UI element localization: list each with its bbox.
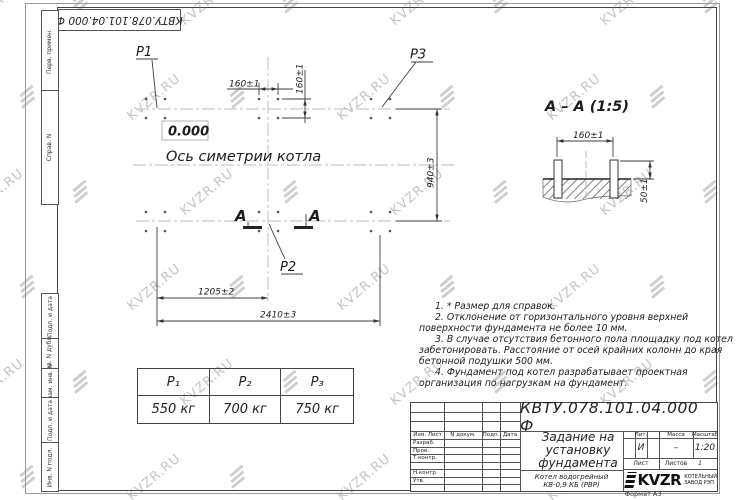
load-table-value-p1: 550 кг [138, 396, 210, 423]
anchor-dot [258, 211, 261, 214]
anchor-dot [145, 230, 148, 233]
section-view: А – А (1:5) 160±1 50±1 [510, 95, 685, 220]
row-prov: Пров. [413, 447, 444, 454]
scale-value: 1:20 [693, 440, 717, 456]
anchor-dot [389, 230, 392, 233]
section-letter-right: А [308, 207, 321, 225]
point-label-p2: P2 [280, 260, 296, 275]
doc-number-box: КВТУ.078.101.04.000 Ф [57, 9, 181, 31]
anchor-dot [258, 117, 261, 120]
anchor-dot [370, 98, 373, 101]
mass-value: – [659, 440, 693, 456]
dim-1205: 1205±2 [198, 288, 234, 298]
note-1: 1. * Размер для справок. [419, 301, 741, 312]
title-block-number: КВТУ.078.101.04.000 Ф [520, 403, 717, 431]
sheets-label: Листов [661, 459, 691, 468]
lit-value: И [635, 440, 647, 456]
dim-2410: 2410±3 [260, 311, 296, 321]
level-mark: 0.000 [168, 125, 209, 140]
anchor-dot [164, 211, 167, 214]
axis-caption: Ось симетрии котла [166, 149, 321, 165]
side-stamp-perv: Перв. примен. [41, 10, 59, 92]
anchor-dot [389, 117, 392, 120]
side-stamp-vzam: Взам. инв. N [41, 368, 59, 399]
dim-arrow [607, 139, 614, 142]
load-table-header-p1: P₁ [138, 369, 210, 396]
side-stamp-sprav: Справ. N [41, 90, 59, 205]
row-razrab: Разраб. [413, 439, 444, 447]
section-title: А – А (1:5) [544, 99, 629, 115]
dimension-lines [136, 59, 442, 326]
kvzr-logo-icon [624, 472, 636, 488]
section-dim-height: 50±1 [640, 178, 650, 203]
lit-label: Лит. [623, 431, 659, 438]
drawing-sheet: KVZR.RUKVZR.RUKVZR.RUKVZR.RUKVZR.RUKVZR.… [0, 0, 750, 500]
dim-arrow [272, 87, 279, 90]
dim-arrow [262, 296, 269, 299]
title-block: Изм. Лист N докум. Подп. Дата Разраб. Пр… [410, 402, 718, 492]
dim-arrow [557, 139, 564, 142]
note-3: 3. В случае отсутствия бетонного пола пл… [419, 334, 741, 367]
dim-160-horizontal: 160±1 [229, 80, 259, 90]
anchor-dot [389, 211, 392, 214]
anchor-dot [277, 98, 280, 101]
dim-arrow [374, 319, 381, 322]
load-table-value-p2: 700 кг [210, 396, 282, 423]
plan-view: P1 P3 P2 А А 0.000 Ось симетрии котла 16… [130, 35, 460, 335]
company-logo-row: KVZR КОТЕЛЬНЫЙ ЗАВОД РЭП [623, 469, 717, 491]
side-stamp-inv-podl: Инв. N подл. [41, 442, 59, 492]
anchor-dot [164, 230, 167, 233]
section-drawing: А – А (1:5) 160±1 50±1 [510, 95, 685, 220]
load-table-value-p3: 750 кг [281, 396, 353, 423]
section-dim-lines [557, 137, 654, 179]
dim-arrow [157, 319, 164, 322]
col-izm-list: Изм. Лист [411, 431, 444, 439]
anchor-dot [370, 211, 373, 214]
load-table-header-p2: P₂ [210, 369, 282, 396]
dim-arrow [435, 109, 438, 116]
point-label-p1: P1 [136, 45, 152, 60]
anchor-dot [277, 211, 280, 214]
doc-number-rotated: КВТУ.078.101.04.000 Ф [56, 14, 183, 26]
section-dim-width: 160±1 [573, 131, 603, 141]
format-label: Формат А3 [595, 490, 691, 498]
dim-940: 940±3 [427, 157, 437, 188]
anchor-dot [370, 117, 373, 120]
load-table: P₁ P₂ P₃ 550 кг 700 кг 750 кг [137, 368, 354, 424]
row-nkontr: Н.контр. [413, 469, 444, 477]
col-podp: Подп. [482, 431, 500, 439]
brand-subtitle: КОТЕЛЬНЫЙ ЗАВОД РЭП [684, 474, 717, 486]
anchor-dot [370, 230, 373, 233]
anchor-dot [145, 211, 148, 214]
mass-label: Масса [659, 431, 693, 438]
drawing-title: Задание на установку фундамента [520, 431, 636, 470]
row-tkontr: Т.контр. [413, 454, 444, 462]
dim-arrow [157, 296, 164, 299]
anchor-dot [258, 98, 261, 101]
brand-name: KVZR [638, 471, 682, 489]
section-letter-left: А [234, 207, 247, 225]
notes-block: 1. * Размер для справок. 2. Отклонение о… [419, 301, 741, 389]
dim-arrow [259, 87, 266, 90]
col-n-dokum: N докум. [444, 431, 482, 439]
anchor-dot [277, 117, 280, 120]
row-utv: Утв. [413, 477, 444, 484]
anchor-dot [258, 230, 261, 233]
anchor-dot [164, 98, 167, 101]
sheet-label: Лист [623, 459, 659, 468]
dim-160-vertical: 160±1 [296, 64, 306, 94]
note-4: 4. Фундамент под котел разрабатывает про… [419, 367, 741, 389]
product-name: Котел водогрейный КВ-0,9 КБ (РВР) [520, 470, 623, 491]
anchor-dot [145, 98, 148, 101]
row-blank [413, 462, 444, 469]
sheets-value: 1 [694, 459, 706, 468]
col-data: Дата [500, 431, 520, 439]
note-2: 2. Отклонение от горизонтального уровня … [419, 312, 741, 334]
load-table-header-p3: P₃ [281, 369, 353, 396]
dim-arrow [303, 112, 306, 119]
dim-arrow [303, 99, 306, 106]
anchor-dot [389, 98, 392, 101]
anchor-dot [277, 230, 280, 233]
point-label-p3: P3 [410, 48, 426, 63]
side-stamp-podp2: Подп. и дата [41, 397, 59, 444]
dim-arrow [648, 173, 651, 180]
anchor-dot [164, 117, 167, 120]
dim-arrow [435, 215, 438, 222]
anchor-dot [145, 117, 148, 120]
scale-label: Масштаб [693, 431, 717, 438]
dim-arrow [648, 161, 651, 168]
side-stamp-podp1: Подп. и дата [41, 293, 59, 340]
